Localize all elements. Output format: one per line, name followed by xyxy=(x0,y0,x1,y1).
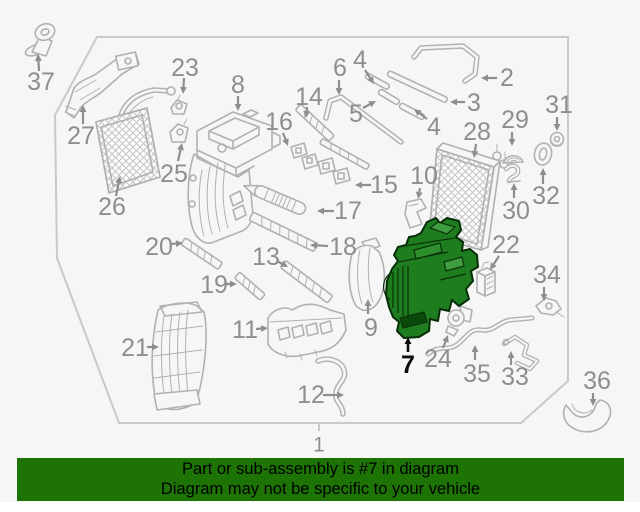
part-21-drawing xyxy=(152,302,206,410)
callout-number: 6 xyxy=(333,54,347,82)
parts-diagram: 3727232526814166452342829313230101517181… xyxy=(0,0,640,512)
callout-number: 1 xyxy=(313,434,325,457)
callout-number: 4 xyxy=(353,46,367,74)
callout-number: 14 xyxy=(295,83,323,111)
callout-number: 4 xyxy=(427,113,441,141)
callout-number: 27 xyxy=(67,122,95,150)
part-31-drawing xyxy=(551,133,564,147)
callout-number: 29 xyxy=(501,106,529,134)
parts-diagram-page: 3727232526814166452342829313230101517181… xyxy=(0,0,640,512)
callout-number: 34 xyxy=(533,261,561,289)
callout-number: 25 xyxy=(160,160,188,188)
callout-number: 32 xyxy=(532,182,560,210)
callout-number: 11 xyxy=(232,316,258,344)
callout-number: 23 xyxy=(171,54,199,82)
callout-number: 13 xyxy=(252,243,280,271)
callout-number: 26 xyxy=(98,193,126,221)
callout-number: 9 xyxy=(364,314,378,342)
callout-arrow-line xyxy=(317,245,328,246)
diagram-note-line2: Diagram may not be specific to your vehi… xyxy=(17,480,624,500)
callout-number: 22 xyxy=(492,231,520,259)
callout-number: 15 xyxy=(370,171,398,199)
callout-number: 20 xyxy=(145,233,173,261)
callout-number: 24 xyxy=(424,345,452,373)
callout-number: 35 xyxy=(463,360,491,388)
callout-number: 8 xyxy=(231,71,245,99)
callout-number: 21 xyxy=(121,334,149,362)
callout-number: 18 xyxy=(329,233,357,261)
callout-number: 10 xyxy=(410,162,438,190)
callout-number: 37 xyxy=(27,68,55,96)
callout-number: 36 xyxy=(583,367,611,395)
callout-number: 28 xyxy=(463,118,491,146)
callout-1[interactable]: 1 xyxy=(313,434,325,457)
callout-number: 3 xyxy=(467,89,481,117)
callout-number: 16 xyxy=(265,108,293,136)
callout-number: 5 xyxy=(349,100,363,128)
callout-number: 2 xyxy=(500,64,514,92)
callout-number: 12 xyxy=(297,381,325,409)
diagram-note-banner: Part or sub-assembly is #7 in diagram Di… xyxy=(17,458,624,501)
callout-number: 31 xyxy=(545,91,573,119)
callout-number: 19 xyxy=(200,271,228,299)
diagram-note-line1: Part or sub-assembly is #7 in diagram xyxy=(17,460,624,480)
callout-number: 33 xyxy=(501,363,529,391)
callout-number: 17 xyxy=(334,197,362,225)
callout-number: 30 xyxy=(502,197,530,225)
callout-number: 7 xyxy=(401,351,415,379)
